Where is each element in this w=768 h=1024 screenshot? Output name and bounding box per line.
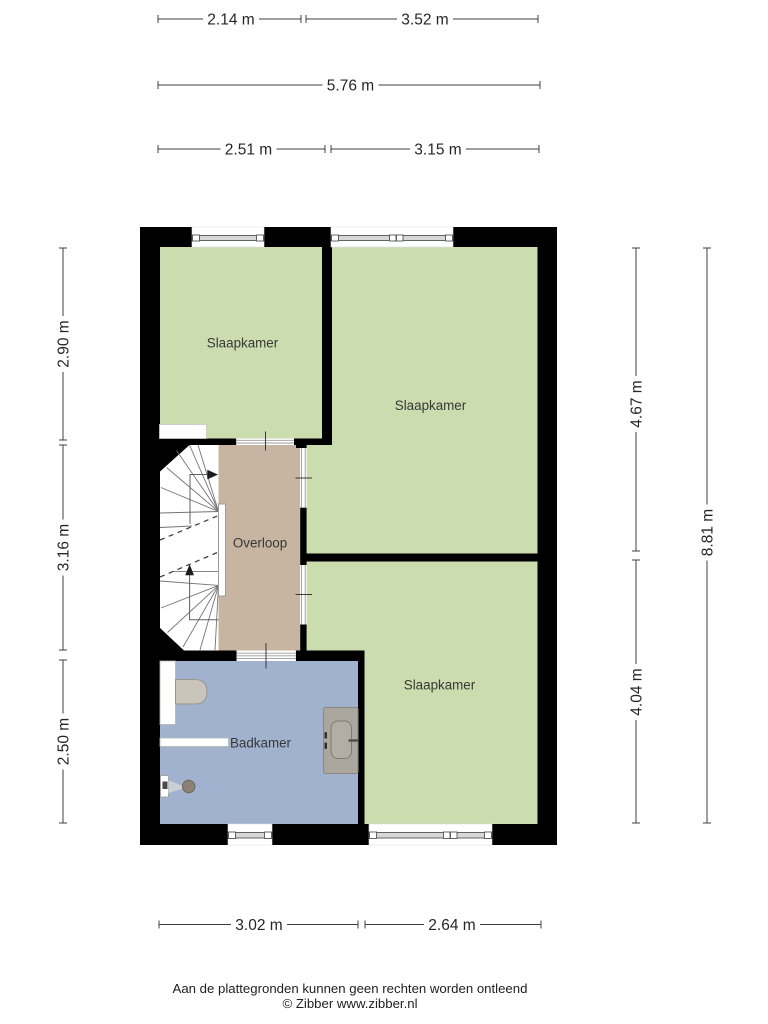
svg-text:Slaapkamer: Slaapkamer [395, 398, 467, 413]
svg-text:3.02 m: 3.02 m [235, 917, 282, 934]
svg-text:2.14 m: 2.14 m [207, 11, 254, 28]
svg-text:Badkamer: Badkamer [230, 736, 292, 751]
svg-text:2.51 m: 2.51 m [225, 141, 272, 158]
svg-text:8.81 m: 8.81 m [699, 509, 716, 556]
svg-text:4.04 m: 4.04 m [628, 668, 645, 715]
svg-text:Slaapkamer: Slaapkamer [207, 335, 279, 350]
svg-text:4.67 m: 4.67 m [628, 380, 645, 427]
svg-text:2.50 m: 2.50 m [55, 718, 72, 765]
svg-text:2.64 m: 2.64 m [428, 917, 475, 934]
svg-text:Slaapkamer: Slaapkamer [404, 677, 476, 692]
svg-text:2.90 m: 2.90 m [55, 320, 72, 367]
svg-text:5.76 m: 5.76 m [327, 77, 374, 94]
svg-text:3.52 m: 3.52 m [401, 11, 448, 28]
svg-text:3.16 m: 3.16 m [55, 524, 72, 571]
svg-text:Aan de plattegronden kunnen ge: Aan de plattegronden kunnen geen rechten… [173, 981, 528, 996]
svg-text:Overloop: Overloop [233, 536, 287, 551]
svg-text:© Zibber www.zibber.nl: © Zibber www.zibber.nl [282, 996, 417, 1011]
svg-text:3.15 m: 3.15 m [414, 141, 461, 158]
